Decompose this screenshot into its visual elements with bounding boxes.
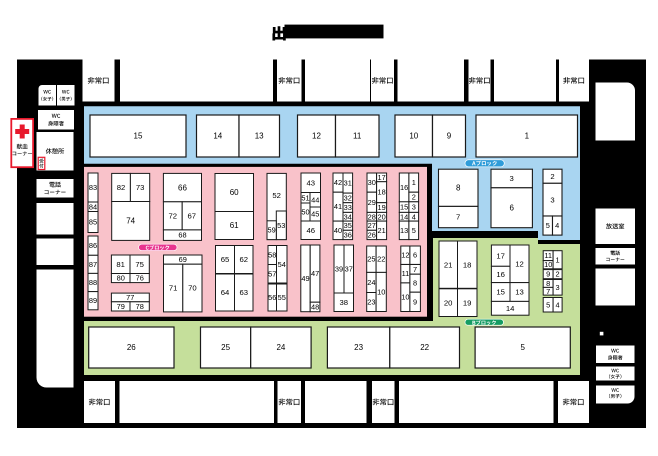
svg-text:11: 11 — [353, 132, 362, 141]
svg-text:7: 7 — [546, 287, 550, 296]
svg-text:52: 52 — [272, 191, 281, 200]
svg-text:41: 41 — [334, 202, 342, 211]
svg-text:69: 69 — [179, 255, 187, 264]
svg-text:72: 72 — [169, 212, 178, 221]
svg-text:74: 74 — [126, 217, 135, 226]
svg-text:62: 62 — [240, 255, 249, 264]
svg-text:1: 1 — [525, 132, 530, 141]
svg-text:1: 1 — [412, 178, 416, 187]
svg-text:18: 18 — [377, 188, 385, 197]
svg-text:89: 89 — [89, 296, 97, 305]
svg-text:24: 24 — [276, 343, 285, 352]
svg-text:87: 87 — [89, 260, 97, 269]
svg-text:26: 26 — [368, 231, 376, 240]
svg-text:13: 13 — [400, 226, 408, 235]
svg-text:21: 21 — [444, 260, 453, 269]
svg-text:5: 5 — [520, 343, 525, 352]
svg-text:11: 11 — [402, 269, 410, 278]
svg-text:9: 9 — [413, 297, 417, 306]
svg-text:30: 30 — [368, 178, 376, 187]
svg-text:23: 23 — [367, 298, 375, 307]
svg-text:9: 9 — [546, 270, 550, 279]
svg-text:40: 40 — [334, 226, 342, 235]
svg-text:19: 19 — [377, 203, 385, 212]
svg-text:10: 10 — [401, 293, 409, 302]
svg-text:53: 53 — [277, 221, 285, 230]
svg-text:21: 21 — [377, 226, 385, 235]
svg-text:8: 8 — [456, 184, 461, 193]
svg-text:29: 29 — [368, 198, 376, 207]
svg-text:58: 58 — [268, 251, 276, 260]
svg-text:12: 12 — [401, 251, 409, 260]
svg-text:10: 10 — [377, 288, 385, 297]
svg-text:24: 24 — [367, 278, 375, 287]
svg-text:75: 75 — [135, 260, 144, 269]
svg-text:31: 31 — [344, 179, 352, 188]
svg-text:51: 51 — [301, 193, 309, 202]
svg-text:17: 17 — [496, 251, 505, 260]
svg-text:25: 25 — [367, 255, 375, 264]
svg-text:85: 85 — [89, 218, 97, 227]
svg-text:45: 45 — [311, 210, 319, 219]
svg-text:35: 35 — [344, 221, 352, 230]
svg-text:14: 14 — [506, 304, 515, 313]
svg-text:22: 22 — [420, 343, 429, 352]
svg-text:13: 13 — [255, 132, 264, 141]
svg-text:63: 63 — [240, 288, 249, 297]
svg-text:22: 22 — [377, 255, 385, 264]
svg-text:88: 88 — [89, 278, 97, 287]
svg-text:59: 59 — [267, 226, 275, 235]
svg-text:46: 46 — [307, 226, 316, 235]
svg-text:36: 36 — [344, 231, 352, 240]
svg-text:5: 5 — [546, 300, 550, 309]
svg-text:6: 6 — [413, 251, 417, 260]
svg-text:15: 15 — [496, 288, 505, 297]
svg-text:19: 19 — [463, 298, 472, 307]
svg-text:37: 37 — [345, 265, 353, 274]
svg-text:6: 6 — [509, 204, 514, 213]
svg-text:76: 76 — [136, 274, 144, 283]
svg-text:47: 47 — [311, 269, 319, 278]
svg-text:67: 67 — [188, 212, 197, 221]
svg-text:82: 82 — [117, 183, 126, 192]
svg-text:9: 9 — [447, 132, 452, 141]
svg-text:5: 5 — [412, 226, 416, 235]
svg-text:70: 70 — [188, 284, 197, 293]
svg-text:44: 44 — [311, 195, 319, 204]
svg-text:2: 2 — [550, 172, 554, 181]
svg-text:25: 25 — [221, 343, 230, 352]
svg-text:18: 18 — [463, 260, 472, 269]
svg-text:28: 28 — [368, 212, 376, 221]
svg-text:10: 10 — [544, 260, 552, 269]
svg-text:7: 7 — [413, 265, 417, 274]
svg-text:33: 33 — [344, 203, 352, 212]
svg-text:55: 55 — [278, 293, 286, 302]
svg-text:86: 86 — [89, 241, 97, 250]
svg-text:77: 77 — [126, 293, 134, 302]
svg-text:10: 10 — [409, 132, 418, 141]
svg-text:78: 78 — [136, 302, 144, 311]
svg-text:61: 61 — [230, 221, 239, 230]
svg-text:7: 7 — [456, 213, 460, 222]
svg-text:32: 32 — [344, 193, 352, 202]
svg-text:13: 13 — [515, 288, 524, 297]
svg-text:43: 43 — [307, 178, 316, 187]
svg-text:79: 79 — [117, 302, 125, 311]
svg-text:14: 14 — [400, 212, 408, 221]
svg-text:3: 3 — [510, 174, 514, 183]
svg-text:1: 1 — [556, 255, 560, 264]
svg-text:4: 4 — [412, 212, 416, 221]
svg-text:50: 50 — [301, 208, 309, 217]
svg-text:11: 11 — [544, 251, 552, 260]
svg-text:54: 54 — [278, 260, 286, 269]
svg-text:57: 57 — [268, 269, 276, 278]
svg-text:14: 14 — [213, 132, 222, 141]
svg-text:81: 81 — [116, 260, 125, 269]
svg-text:83: 83 — [89, 183, 97, 192]
svg-text:4: 4 — [555, 221, 559, 230]
svg-text:3: 3 — [412, 203, 416, 212]
svg-text:3: 3 — [550, 195, 554, 204]
svg-text:73: 73 — [136, 183, 145, 192]
svg-text:20: 20 — [377, 212, 385, 221]
svg-text:38: 38 — [340, 298, 349, 307]
svg-text:65: 65 — [221, 255, 230, 264]
svg-text:16: 16 — [496, 270, 505, 279]
svg-text:15: 15 — [134, 132, 143, 141]
svg-text:68: 68 — [178, 231, 186, 240]
svg-text:17: 17 — [377, 173, 385, 182]
svg-text:26: 26 — [127, 343, 136, 352]
svg-text:16: 16 — [400, 183, 408, 192]
svg-text:84: 84 — [89, 202, 97, 211]
svg-text:48: 48 — [311, 303, 319, 312]
svg-text:71: 71 — [169, 284, 178, 293]
svg-text:27: 27 — [368, 221, 376, 230]
svg-text:60: 60 — [230, 188, 239, 197]
svg-text:39: 39 — [335, 265, 343, 274]
svg-text:3: 3 — [556, 283, 560, 292]
svg-text:2: 2 — [556, 270, 560, 279]
svg-text:80: 80 — [117, 274, 125, 283]
svg-text:5: 5 — [546, 221, 550, 230]
svg-text:4: 4 — [556, 300, 560, 309]
svg-text:8: 8 — [413, 279, 417, 288]
svg-text:42: 42 — [334, 178, 342, 187]
svg-text:64: 64 — [221, 288, 230, 297]
svg-text:66: 66 — [178, 183, 187, 192]
svg-text:23: 23 — [354, 343, 363, 352]
svg-text:12: 12 — [312, 132, 321, 141]
svg-text:15: 15 — [400, 203, 408, 212]
svg-text:20: 20 — [444, 298, 453, 307]
svg-text:49: 49 — [301, 274, 309, 283]
svg-text:2: 2 — [412, 193, 416, 202]
svg-text:56: 56 — [268, 293, 276, 302]
svg-text:34: 34 — [344, 212, 352, 221]
svg-text:12: 12 — [515, 259, 524, 268]
